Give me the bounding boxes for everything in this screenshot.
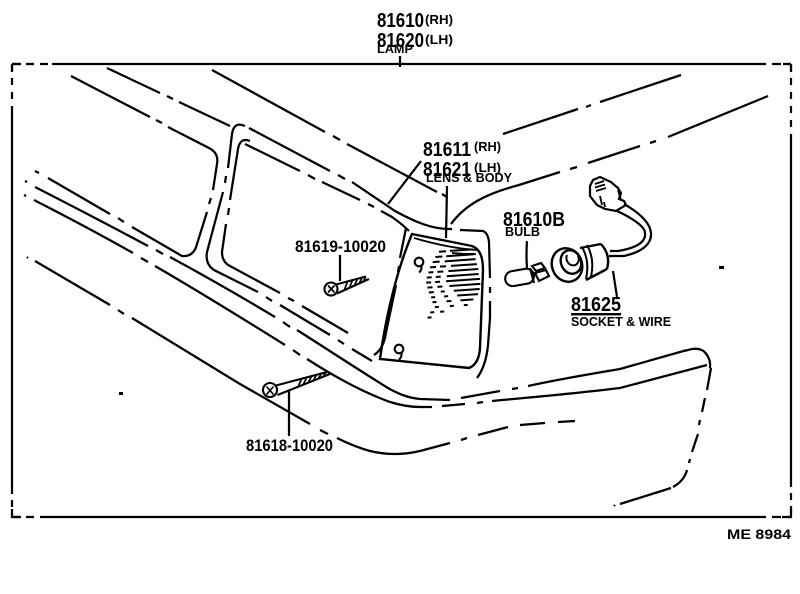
svg-text:(LH): (LH) (425, 32, 453, 47)
svg-text:81619-10020: 81619-10020 (295, 237, 386, 256)
svg-text:BULB: BULB (505, 224, 540, 239)
svg-text:81610: 81610 (377, 10, 424, 32)
svg-text:LAMP: LAMP (377, 42, 413, 56)
svg-text:81625: 81625 (571, 294, 621, 316)
svg-text:(RH): (RH) (474, 139, 501, 154)
svg-text:81618-10020: 81618-10020 (246, 436, 333, 455)
svg-text:81611: 81611 (423, 139, 471, 161)
svg-text:ME 8984: ME 8984 (727, 526, 791, 542)
svg-text:SOCKET & WIRE: SOCKET & WIRE (571, 314, 671, 329)
svg-text:LENS & BODY: LENS & BODY (426, 170, 512, 185)
svg-text:(RH): (RH) (425, 12, 453, 27)
